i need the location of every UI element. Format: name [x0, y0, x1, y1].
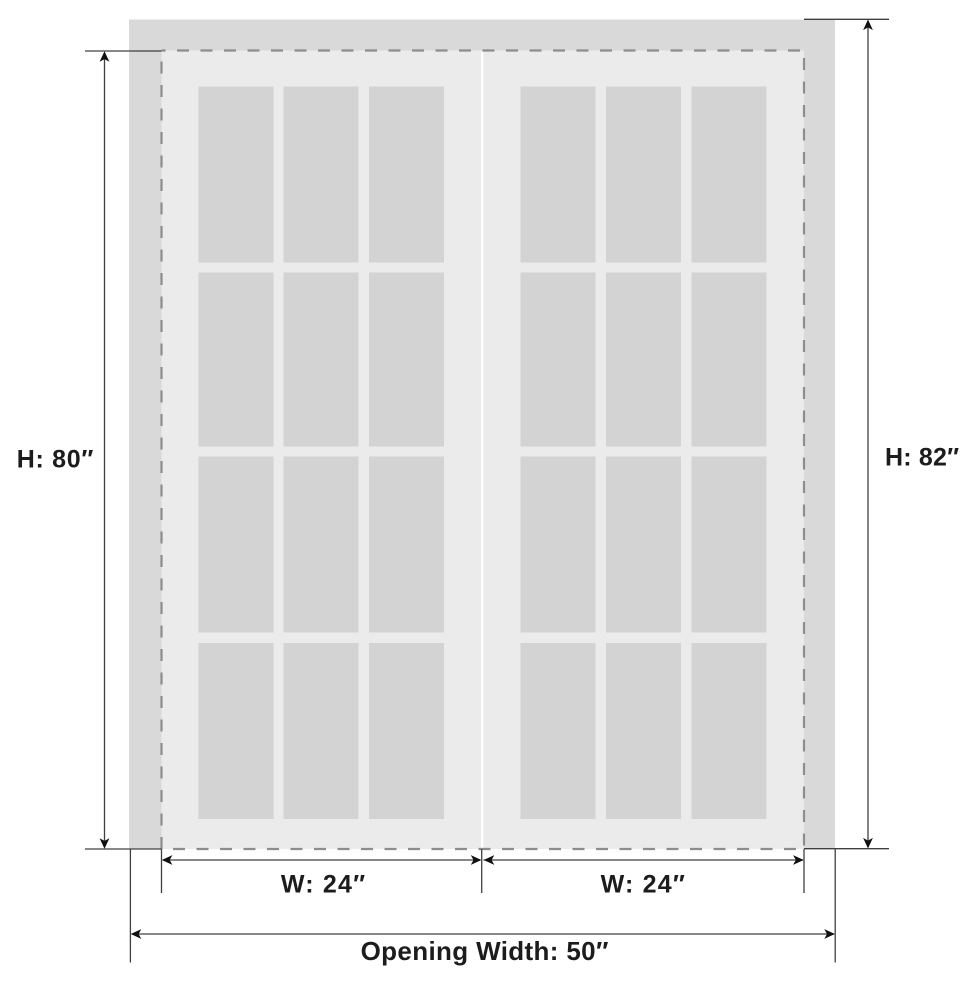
svg-text:W: 24″: W: 24″ — [601, 871, 686, 899]
svg-text:Opening Width: 50″: Opening Width: 50″ — [361, 936, 609, 966]
svg-text:W: 24″: W: 24″ — [281, 871, 366, 899]
svg-text:H: 82″: H: 82″ — [885, 444, 959, 472]
svg-text:H: 80″: H: 80″ — [17, 446, 94, 474]
